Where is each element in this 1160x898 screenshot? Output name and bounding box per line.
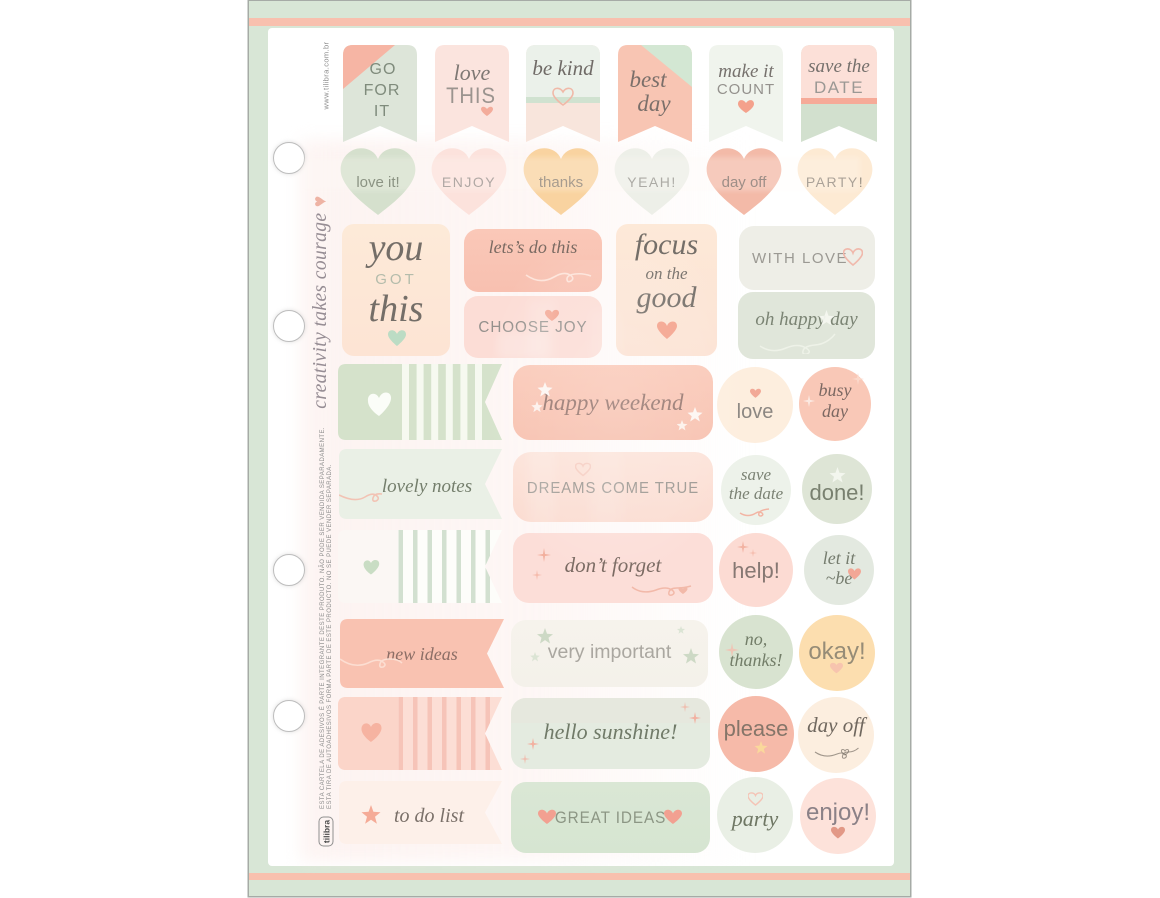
svg-text:love: love bbox=[453, 60, 490, 85]
svg-text:best: best bbox=[629, 67, 667, 92]
svg-text:lovely notes: lovely notes bbox=[382, 476, 472, 497]
svg-text:FOR: FOR bbox=[364, 82, 401, 99]
svg-text:save the: save the bbox=[808, 56, 870, 77]
svg-text:IT: IT bbox=[374, 103, 390, 120]
svg-text:COUNT: COUNT bbox=[717, 81, 775, 98]
svg-text:new ideas: new ideas bbox=[386, 644, 458, 664]
svg-text:DATE: DATE bbox=[813, 78, 863, 97]
svg-text:GO: GO bbox=[370, 61, 397, 78]
svg-text:make it: make it bbox=[718, 61, 774, 82]
svg-text:day: day bbox=[637, 91, 671, 116]
svg-text:be kind: be kind bbox=[532, 56, 594, 80]
svg-text:THIS: THIS bbox=[446, 84, 496, 108]
svg-text:to do list: to do list bbox=[394, 805, 464, 827]
